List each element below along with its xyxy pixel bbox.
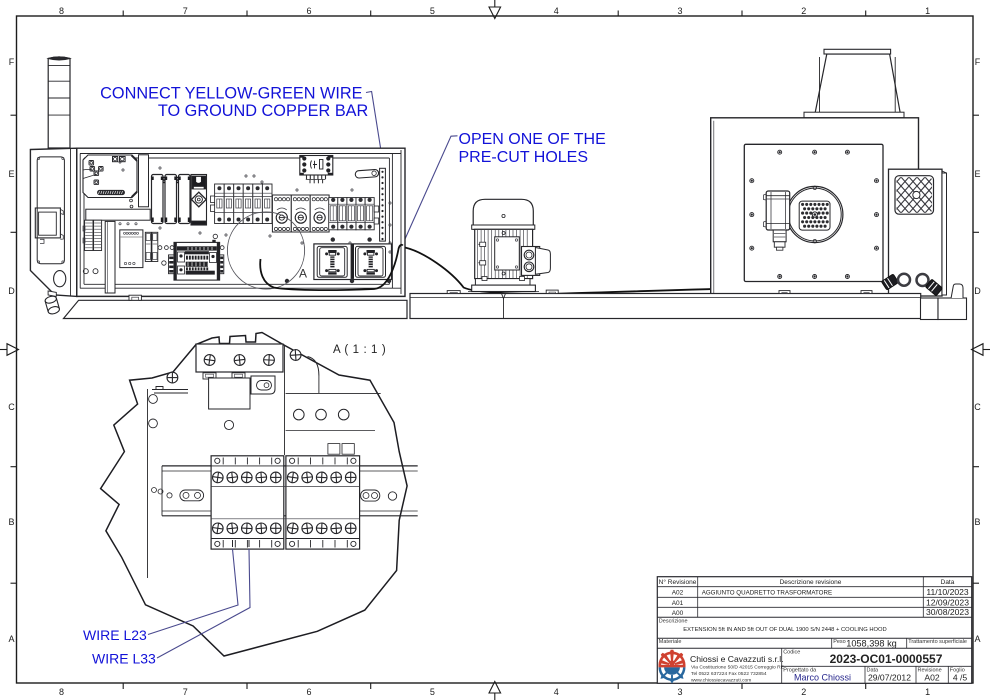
svg-text:5: 5 xyxy=(430,6,435,16)
svg-text:11/10/2023: 11/10/2023 xyxy=(926,587,969,597)
svg-text:D: D xyxy=(974,286,981,296)
svg-text:4 /5: 4 /5 xyxy=(953,673,968,683)
svg-text:WIRE L23: WIRE L23 xyxy=(83,627,147,643)
svg-text:1058,398 kg: 1058,398 kg xyxy=(846,639,897,649)
svg-text:Descrizione revisione: Descrizione revisione xyxy=(780,579,842,586)
svg-text:F: F xyxy=(9,57,15,67)
svg-text:29/07/2012: 29/07/2012 xyxy=(868,673,911,683)
svg-text:A00: A00 xyxy=(672,610,684,617)
svg-text:A ( 1 : 1 ): A ( 1 : 1 ) xyxy=(333,344,386,356)
svg-text:E: E xyxy=(8,169,14,179)
svg-text:Chiossi e Cavazzuti s.r.l.: Chiossi e Cavazzuti s.r.l. xyxy=(690,654,784,664)
svg-text:Tel 0522 637224 Fax 0522 73285: Tel 0522 637224 Fax 0522 732854 xyxy=(691,671,767,677)
svg-text:Peso: Peso xyxy=(833,639,846,645)
svg-text:1: 1 xyxy=(925,6,930,16)
svg-text:7: 7 xyxy=(183,687,188,697)
svg-text:2: 2 xyxy=(801,6,806,16)
svg-text:3: 3 xyxy=(677,6,682,16)
svg-text:B: B xyxy=(8,517,14,527)
svg-text:Via Costituzione 50/D 42015 Co: Via Costituzione 50/D 42015 Correggio RE xyxy=(691,665,785,671)
svg-text:A: A xyxy=(974,634,980,644)
svg-text:WIRE L33: WIRE L33 xyxy=(92,651,156,667)
svg-text:A: A xyxy=(8,634,14,644)
svg-text:C: C xyxy=(974,402,981,412)
svg-text:3: 3 xyxy=(677,687,682,697)
svg-text:Marco Chiossi: Marco Chiossi xyxy=(794,673,851,683)
svg-text:A: A xyxy=(299,267,307,281)
svg-text:Materiale: Materiale xyxy=(659,639,682,645)
svg-text:2: 2 xyxy=(801,687,806,697)
svg-text:A02: A02 xyxy=(924,673,940,683)
svg-text:4: 4 xyxy=(554,6,559,16)
svg-text:CONNECT YELLOW-GREEN WIRE: CONNECT YELLOW-GREEN WIRE xyxy=(100,85,362,103)
svg-text:F: F xyxy=(975,57,981,67)
svg-text:A02: A02 xyxy=(672,590,684,597)
svg-text:1: 1 xyxy=(925,687,930,697)
svg-text:Data: Data xyxy=(941,579,955,586)
svg-text:7: 7 xyxy=(183,6,188,16)
svg-text:2023-OC01-0000557: 2023-OC01-0000557 xyxy=(830,652,943,666)
svg-text:EXTENSION 5ft IN AND 5ft OUT O: EXTENSION 5ft IN AND 5ft OUT OF DUAL 190… xyxy=(683,627,886,633)
svg-text:5: 5 xyxy=(430,687,435,697)
svg-text:Codice: Codice xyxy=(783,650,800,656)
svg-text:TO GROUND COPPER BAR: TO GROUND COPPER BAR xyxy=(158,102,368,120)
svg-text:8: 8 xyxy=(59,687,64,697)
svg-text:OPEN ONE OF THE: OPEN ONE OF THE xyxy=(459,131,606,148)
svg-text:C: C xyxy=(8,402,15,412)
svg-text:B: B xyxy=(974,517,980,527)
svg-text:6: 6 xyxy=(306,6,311,16)
svg-text:4: 4 xyxy=(554,687,559,697)
svg-text:AGGIUNTO QUADRETTO TRASFORMATO: AGGIUNTO QUADRETTO TRASFORMATORE xyxy=(702,590,832,597)
svg-text:Descrizione: Descrizione xyxy=(659,619,688,625)
svg-text:E: E xyxy=(974,169,980,179)
svg-text:6: 6 xyxy=(306,687,311,697)
svg-text:Trattamento superficiale: Trattamento superficiale xyxy=(908,639,967,645)
svg-text:www.chiossiecavazzuti.com: www.chiossiecavazzuti.com xyxy=(691,678,751,684)
svg-text:PRE-CUT HOLES: PRE-CUT HOLES xyxy=(459,149,589,166)
svg-text:D: D xyxy=(8,286,15,296)
svg-text:A01: A01 xyxy=(672,600,684,607)
svg-text:30/08/2023: 30/08/2023 xyxy=(926,607,969,617)
svg-text:N° Revisione: N° Revisione xyxy=(659,578,697,586)
svg-text:8: 8 xyxy=(59,6,64,16)
svg-text:12/09/2023: 12/09/2023 xyxy=(926,598,969,608)
